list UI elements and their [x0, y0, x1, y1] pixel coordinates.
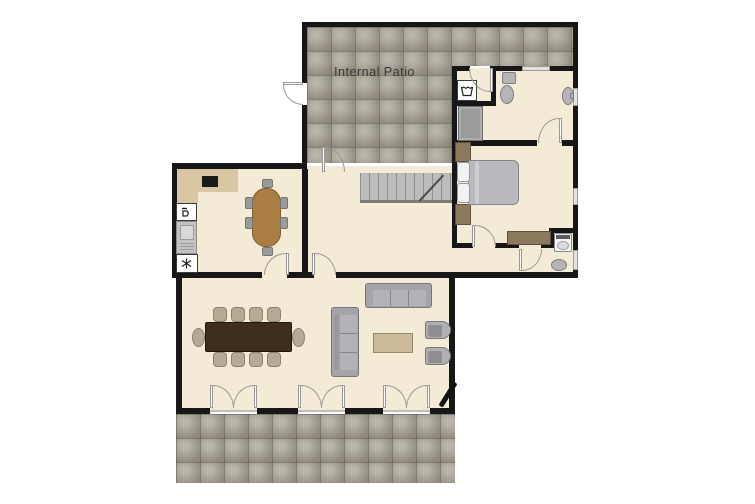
bedroom-right-window	[573, 188, 578, 205]
staircase-edge	[360, 200, 452, 203]
bathroom-tap	[570, 93, 574, 99]
cushion-divider	[390, 290, 391, 306]
toilet-bowl	[500, 85, 514, 104]
wall-kitchen-hall-sep	[302, 169, 308, 272]
dining-chair	[249, 352, 263, 367]
coffee-table	[373, 333, 413, 353]
nightstand	[455, 204, 471, 225]
kitchen-chair	[245, 217, 253, 229]
kitchen-counter-side	[177, 192, 198, 203]
wall-right-c	[573, 140, 578, 188]
sofa-back	[334, 315, 339, 370]
armchair-seat	[428, 325, 442, 337]
wall-living-bottom-a	[176, 408, 210, 414]
kitchen-table	[252, 188, 281, 247]
french-door-leaf	[342, 385, 345, 408]
kitchen-chair	[280, 217, 288, 229]
sofa-cushions	[340, 315, 357, 370]
bathroom-door-leaf	[559, 118, 562, 143]
wc-toilet	[554, 233, 572, 252]
wall-bedroom-bottom-a	[452, 243, 473, 248]
dining-chair	[231, 307, 245, 322]
kitchen-door-leaf	[286, 253, 289, 275]
cushion-divider	[340, 352, 357, 353]
bed-duvet	[468, 160, 519, 205]
internal-patio-label: Internal Patio	[334, 64, 415, 79]
wc-toilet-tank	[556, 235, 570, 239]
duvet-fold	[475, 161, 479, 204]
dining-end-chair	[192, 328, 205, 347]
wc-toilet-bowl	[557, 241, 569, 250]
wall-main-bottom-b	[287, 272, 314, 278]
cushion-divider	[340, 333, 357, 334]
shower-unit	[458, 106, 483, 141]
dining-chair	[231, 352, 245, 367]
patio-door-sill-2	[298, 410, 345, 412]
toilet-tank	[502, 72, 516, 84]
dining-table	[205, 322, 292, 352]
wall-patio-left-a	[302, 27, 307, 83]
armchair	[425, 321, 451, 339]
nightstand	[455, 142, 471, 162]
french-door-leaf	[254, 385, 257, 408]
wall-main-bottom-c	[336, 272, 457, 278]
wall-patio-top	[302, 22, 578, 27]
terrace-patio	[176, 414, 455, 483]
sofa-vertical	[331, 307, 359, 377]
wall-right-a	[573, 66, 578, 88]
wall-living-left	[176, 272, 182, 414]
wall-living-bottom-b	[257, 408, 298, 414]
wall-living-bottom-c	[345, 408, 383, 414]
kitchen-chair	[245, 197, 253, 209]
sink-basin	[180, 225, 194, 240]
sofa-cushions	[373, 290, 426, 306]
cooktop	[202, 176, 218, 187]
kitchen-sink-unit	[176, 221, 197, 254]
sink-drainer	[180, 243, 194, 252]
wc-sink	[551, 259, 567, 271]
wall-right-b	[573, 106, 578, 140]
dining-chair	[267, 352, 281, 367]
wall-bath-top-a	[497, 66, 522, 71]
patio-exterior-door-arc	[283, 85, 303, 105]
dining-chair	[267, 307, 281, 322]
oven-icon	[180, 206, 193, 218]
dining-end-chair	[292, 328, 305, 347]
french-door-leaf	[427, 385, 430, 408]
kitchen-chair	[262, 179, 273, 188]
armchair-seat	[428, 351, 442, 363]
fridge-unit	[176, 254, 198, 273]
patio-door-sill-3	[383, 410, 430, 412]
bed-pillow	[457, 162, 470, 182]
oven-unit	[176, 203, 197, 221]
laundry-door-leaf	[490, 68, 493, 92]
wc-right-window	[573, 250, 578, 270]
sofa-horizontal	[365, 283, 432, 308]
dresser	[507, 231, 551, 245]
wall-patio-left-b	[302, 105, 307, 163]
kitchen-chair	[280, 197, 288, 209]
wall-living-bottom-d	[430, 408, 455, 414]
laundry-tub-icon	[460, 85, 474, 97]
armchair	[425, 347, 451, 365]
dining-chair	[249, 307, 263, 322]
kitchen-chair	[262, 247, 273, 256]
wall-patio-right	[573, 27, 578, 66]
dining-chair	[213, 307, 227, 322]
bed-pillow	[457, 183, 470, 203]
floor-plan: Internal Patio	[0, 0, 755, 504]
wall-laundry-top-a	[455, 66, 470, 71]
dining-chair	[213, 352, 227, 367]
patio-door-sill-1	[210, 410, 257, 412]
wall-wing-bottom	[452, 272, 578, 278]
bathroom-top-window	[522, 66, 550, 71]
snowflake-icon	[181, 258, 192, 269]
cushion-divider	[408, 290, 409, 306]
